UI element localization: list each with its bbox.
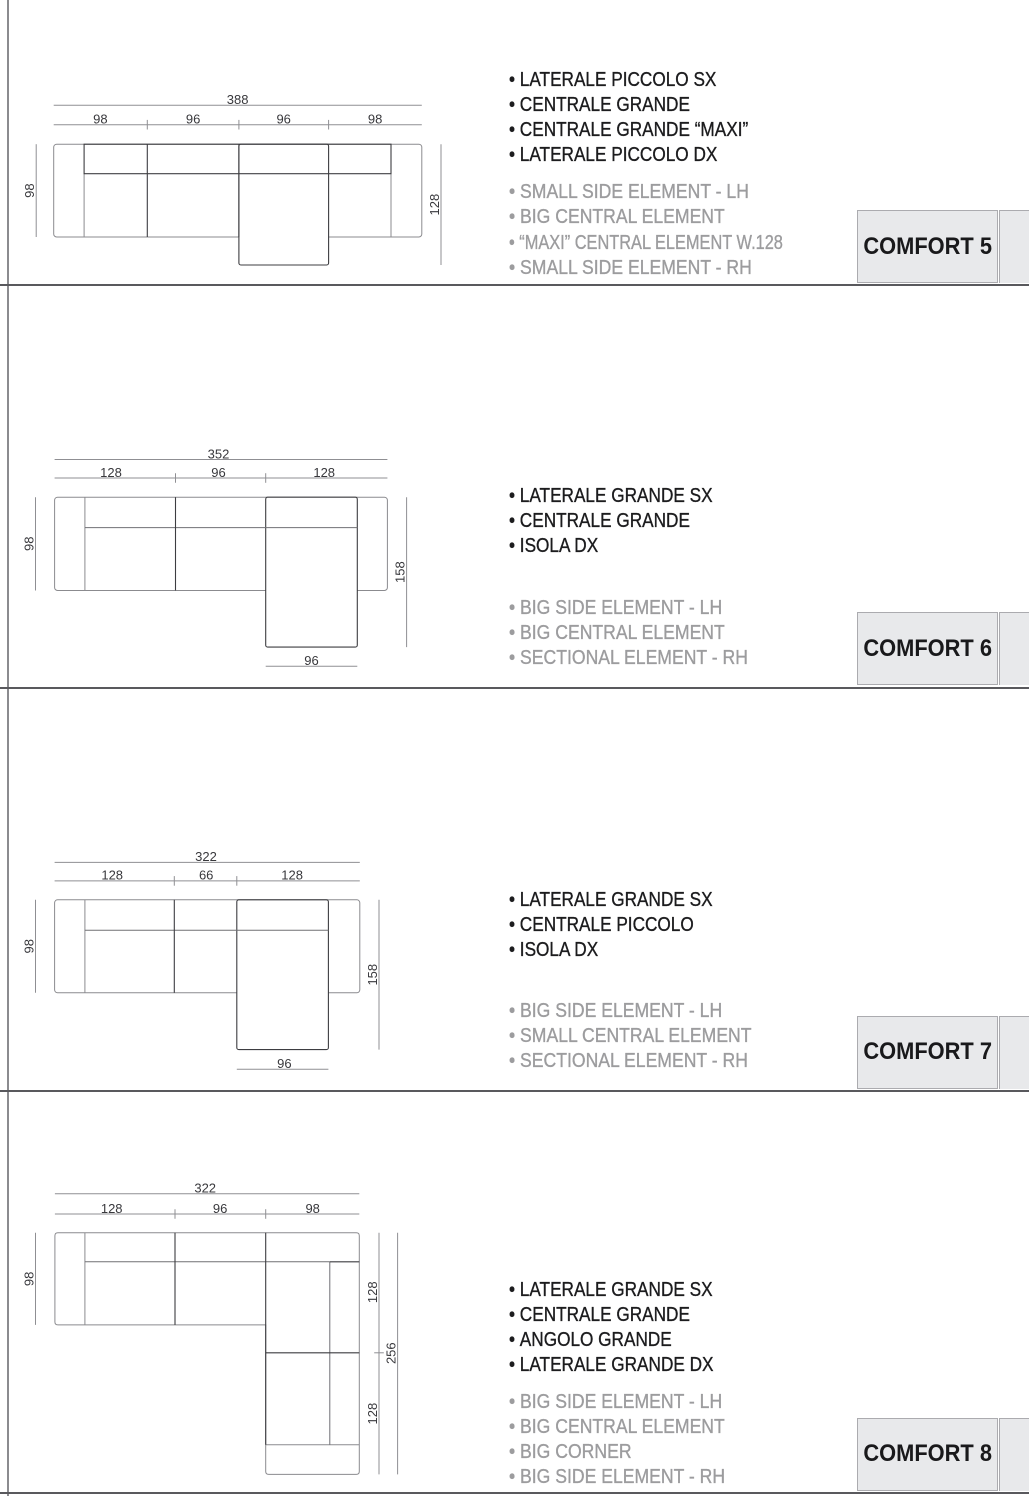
svg-text:128: 128: [365, 1281, 380, 1303]
svg-text:66: 66: [199, 868, 213, 883]
svg-text:128: 128: [100, 465, 122, 480]
svg-text:352: 352: [208, 446, 230, 461]
svg-text:128: 128: [281, 868, 303, 883]
svg-text:98: 98: [305, 1201, 319, 1216]
svg-text:98: 98: [21, 939, 36, 953]
svg-text:96: 96: [211, 465, 225, 480]
svg-text:128: 128: [101, 1201, 123, 1216]
svg-text:96: 96: [186, 112, 200, 127]
svg-text:128: 128: [427, 194, 442, 216]
svg-text:388: 388: [227, 92, 249, 107]
svg-text:96: 96: [213, 1201, 227, 1216]
svg-text:96: 96: [276, 112, 290, 127]
svg-text:322: 322: [194, 1181, 216, 1196]
svg-text:158: 158: [392, 561, 407, 583]
svg-text:128: 128: [365, 1403, 380, 1425]
svg-text:98: 98: [21, 1272, 36, 1286]
svg-text:96: 96: [277, 1056, 291, 1071]
svg-text:322: 322: [195, 849, 217, 864]
svg-text:256: 256: [383, 1342, 398, 1364]
svg-text:98: 98: [368, 112, 382, 127]
svg-text:128: 128: [101, 868, 123, 883]
svg-text:128: 128: [313, 465, 335, 480]
svg-text:96: 96: [304, 653, 318, 668]
svg-text:98: 98: [22, 183, 37, 197]
svg-text:158: 158: [365, 964, 380, 986]
svg-text:98: 98: [93, 112, 107, 127]
svg-text:98: 98: [21, 537, 36, 551]
